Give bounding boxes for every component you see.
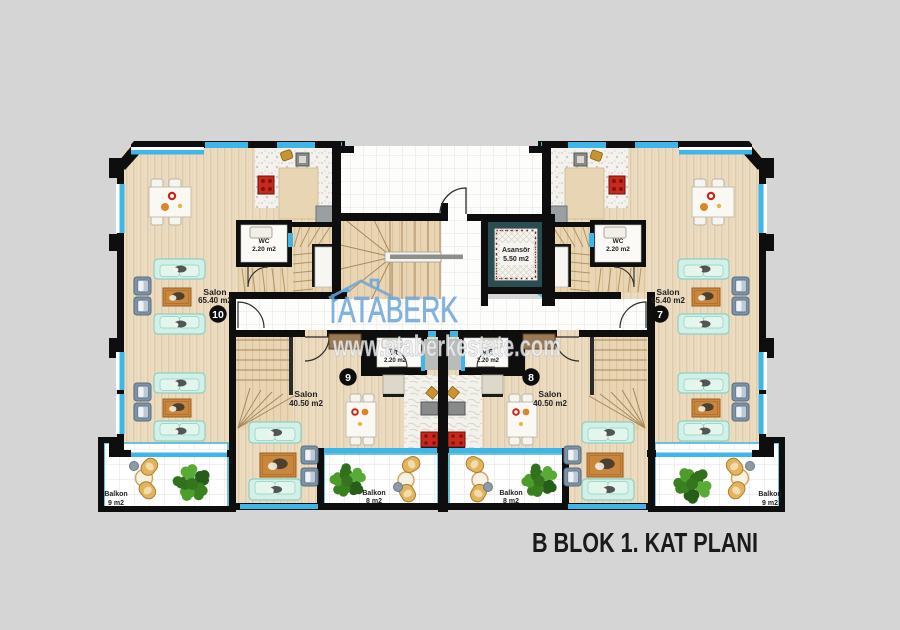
svg-text:www.ataberkestate.com: www.ataberkestate.com [332,330,561,363]
svg-text:7: 7 [657,309,663,321]
svg-text:40.50 m2: 40.50 m2 [533,399,567,408]
svg-text:8: 8 [528,372,534,384]
svg-text:Salon: Salon [538,389,561,399]
svg-text:B BLOK 1. KAT PLANI: B BLOK 1. KAT PLANI [532,527,758,558]
svg-text:Salon: Salon [294,389,317,399]
svg-text:WC: WC [259,238,270,245]
svg-text:9 m2: 9 m2 [762,500,778,507]
svg-text:2.20 m2: 2.20 m2 [252,246,276,253]
svg-text:65.40 m2: 65.40 m2 [651,296,685,305]
svg-text:WC: WC [613,238,624,245]
svg-text:Balkon: Balkon [104,491,127,498]
svg-text:9 m2: 9 m2 [108,500,124,507]
svg-text:8 m2: 8 m2 [503,498,519,505]
svg-text:40.50 m2: 40.50 m2 [289,399,323,408]
svg-text:Balkon: Balkon [758,491,781,498]
svg-text:10: 10 [212,309,224,321]
svg-text:Balkon: Balkon [362,490,385,497]
svg-text:65.40 m2: 65.40 m2 [198,296,232,305]
svg-text:5.50 m2: 5.50 m2 [503,256,529,263]
svg-text:Asansör: Asansör [502,247,530,254]
svg-text:8 m2: 8 m2 [366,498,382,505]
svg-text:ATABERK: ATABERK [338,289,458,330]
svg-text:2.20 m2: 2.20 m2 [606,246,630,253]
svg-text:Balkon: Balkon [499,490,522,497]
svg-text:9: 9 [345,372,351,384]
